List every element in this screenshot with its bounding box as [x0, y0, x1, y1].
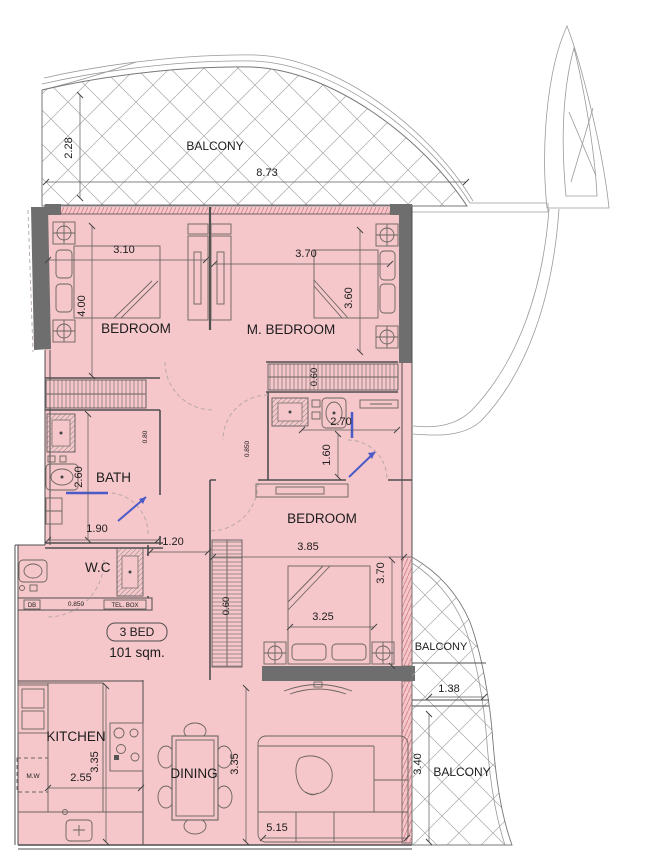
wc-door-dim: 0.850: [68, 601, 85, 608]
tv-wall: [262, 666, 414, 681]
balcony-top-width-dim: 8.73: [256, 167, 277, 179]
bedroom1-width-dim: 3.10: [113, 244, 134, 256]
wc-label: W.C: [85, 560, 111, 575]
balcony-top-depth-dim: 2.28: [63, 137, 75, 158]
bath-depth-dim: 2.60: [73, 466, 85, 487]
living-depth-dim: 3.35: [229, 753, 241, 774]
bedroom3-bed-dim: 3.25: [312, 611, 333, 623]
north-window-wall: [45, 205, 412, 214]
kitchen-label: KITCHEN: [46, 729, 105, 744]
bedroom3-depth-dim: 3.70: [375, 562, 387, 583]
dining-label: DINING: [170, 766, 217, 781]
ensuite-width-dim: 2.70: [330, 416, 351, 428]
master-label: M. BEDROOM: [247, 322, 336, 337]
bedroom3-wardrobe-dim: 0.60: [221, 597, 232, 616]
floor-plan: BALCONY 2.28 8.73: [0, 0, 650, 867]
balcony-lower-depth-dim: 3.40: [412, 753, 424, 774]
unit-area-label: 101 sqm.: [109, 645, 165, 660]
top-balcony: BALCONY 2.28 8.73: [42, 55, 473, 206]
hall-width-dim: 1.20: [162, 536, 183, 548]
master-depth-dim: 3.60: [343, 287, 355, 308]
ensuite-door-dim: 0.850: [244, 440, 251, 457]
tel-box-label: TEL. BOX: [111, 603, 138, 609]
balcony-upper-width-dim: 1.38: [438, 683, 459, 695]
bedroom3-width-dim: 3.85: [297, 541, 318, 553]
bedroom3-label: BEDROOM: [287, 511, 357, 526]
kitchen-depth-dim: 3.35: [89, 751, 101, 772]
bedroom1-depth-dim: 4.00: [76, 295, 88, 316]
unit-badge-label: 3 BED: [120, 625, 155, 639]
balcony-upper-label: BALCONY: [415, 641, 468, 653]
right-balcony: BALCONY 1.38 BALCONY 3.40: [412, 557, 512, 845]
bedroom1-label: BEDROOM: [101, 321, 171, 336]
living-width-dim: 5.15: [266, 822, 287, 834]
ensuite-depth-dim: 1.60: [321, 444, 333, 465]
east-wall-master: [399, 209, 412, 363]
balcony-lower-label: BALCONY: [433, 765, 490, 779]
db-label: DB: [28, 603, 36, 609]
master-width-dim: 3.70: [295, 248, 316, 260]
floor-plan-svg: BALCONY 2.28 8.73: [0, 0, 650, 867]
microwave-label: M.W: [26, 773, 40, 780]
master-wardrobe-dim: 0.60: [309, 368, 320, 387]
balcony-top-label: BALCONY: [186, 139, 243, 153]
bath-door-dim: 0.80: [142, 430, 149, 443]
bath-width-dim: 1.90: [86, 523, 107, 535]
west-wall-upper: [31, 207, 51, 350]
kitchen-width-dim: 2.55: [70, 772, 91, 784]
bath-label: BATH: [96, 470, 131, 485]
